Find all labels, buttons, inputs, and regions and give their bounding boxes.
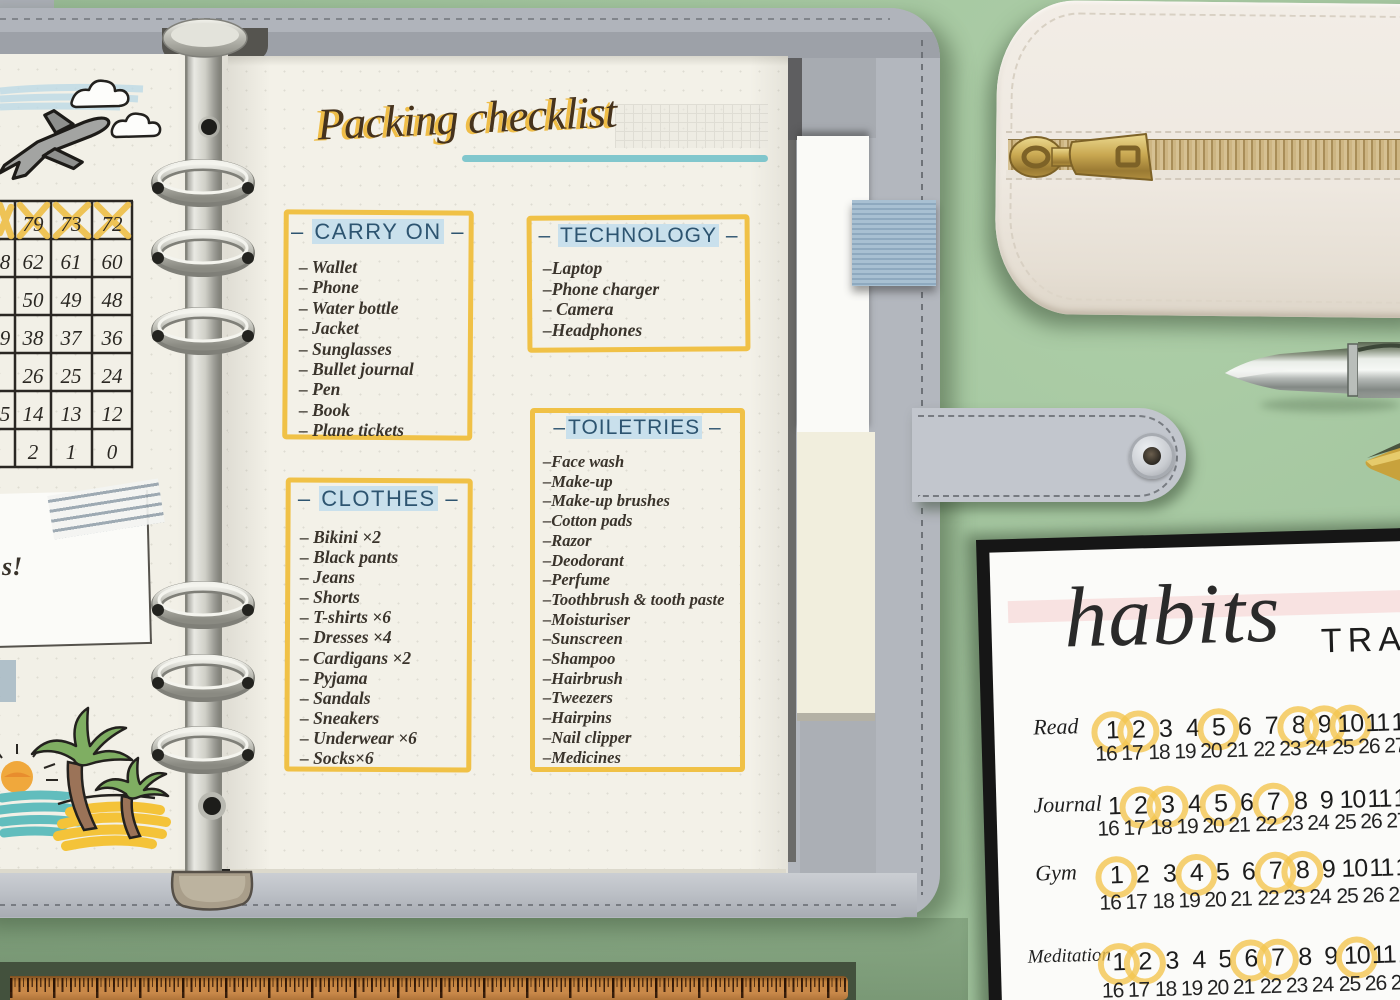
svg-text:60: 60 bbox=[102, 250, 124, 274]
svg-text:50: 50 bbox=[23, 288, 45, 312]
svg-text:24: 24 bbox=[102, 364, 124, 388]
svg-text:36: 36 bbox=[101, 326, 124, 350]
svg-text:14: 14 bbox=[23, 402, 45, 426]
svg-text:79: 79 bbox=[23, 212, 45, 236]
svg-text:13: 13 bbox=[61, 402, 82, 426]
svg-text:26: 26 bbox=[23, 364, 45, 388]
svg-text:62: 62 bbox=[23, 250, 45, 274]
svg-text:61: 61 bbox=[61, 250, 82, 274]
svg-text:25: 25 bbox=[61, 364, 82, 388]
svg-text:2: 2 bbox=[28, 440, 39, 464]
svg-text:8: 8 bbox=[0, 250, 11, 274]
svg-text:49: 49 bbox=[61, 288, 83, 312]
svg-text:5: 5 bbox=[0, 402, 10, 426]
svg-text:37: 37 bbox=[60, 326, 84, 350]
svg-text:0: 0 bbox=[107, 440, 118, 464]
svg-text:73: 73 bbox=[61, 212, 82, 236]
svg-text:48: 48 bbox=[102, 288, 124, 312]
svg-text:72: 72 bbox=[102, 212, 124, 236]
svg-text:9: 9 bbox=[0, 326, 11, 350]
svg-text:38: 38 bbox=[22, 326, 45, 350]
svg-text:12: 12 bbox=[102, 402, 124, 426]
svg-text:1: 1 bbox=[66, 440, 77, 464]
